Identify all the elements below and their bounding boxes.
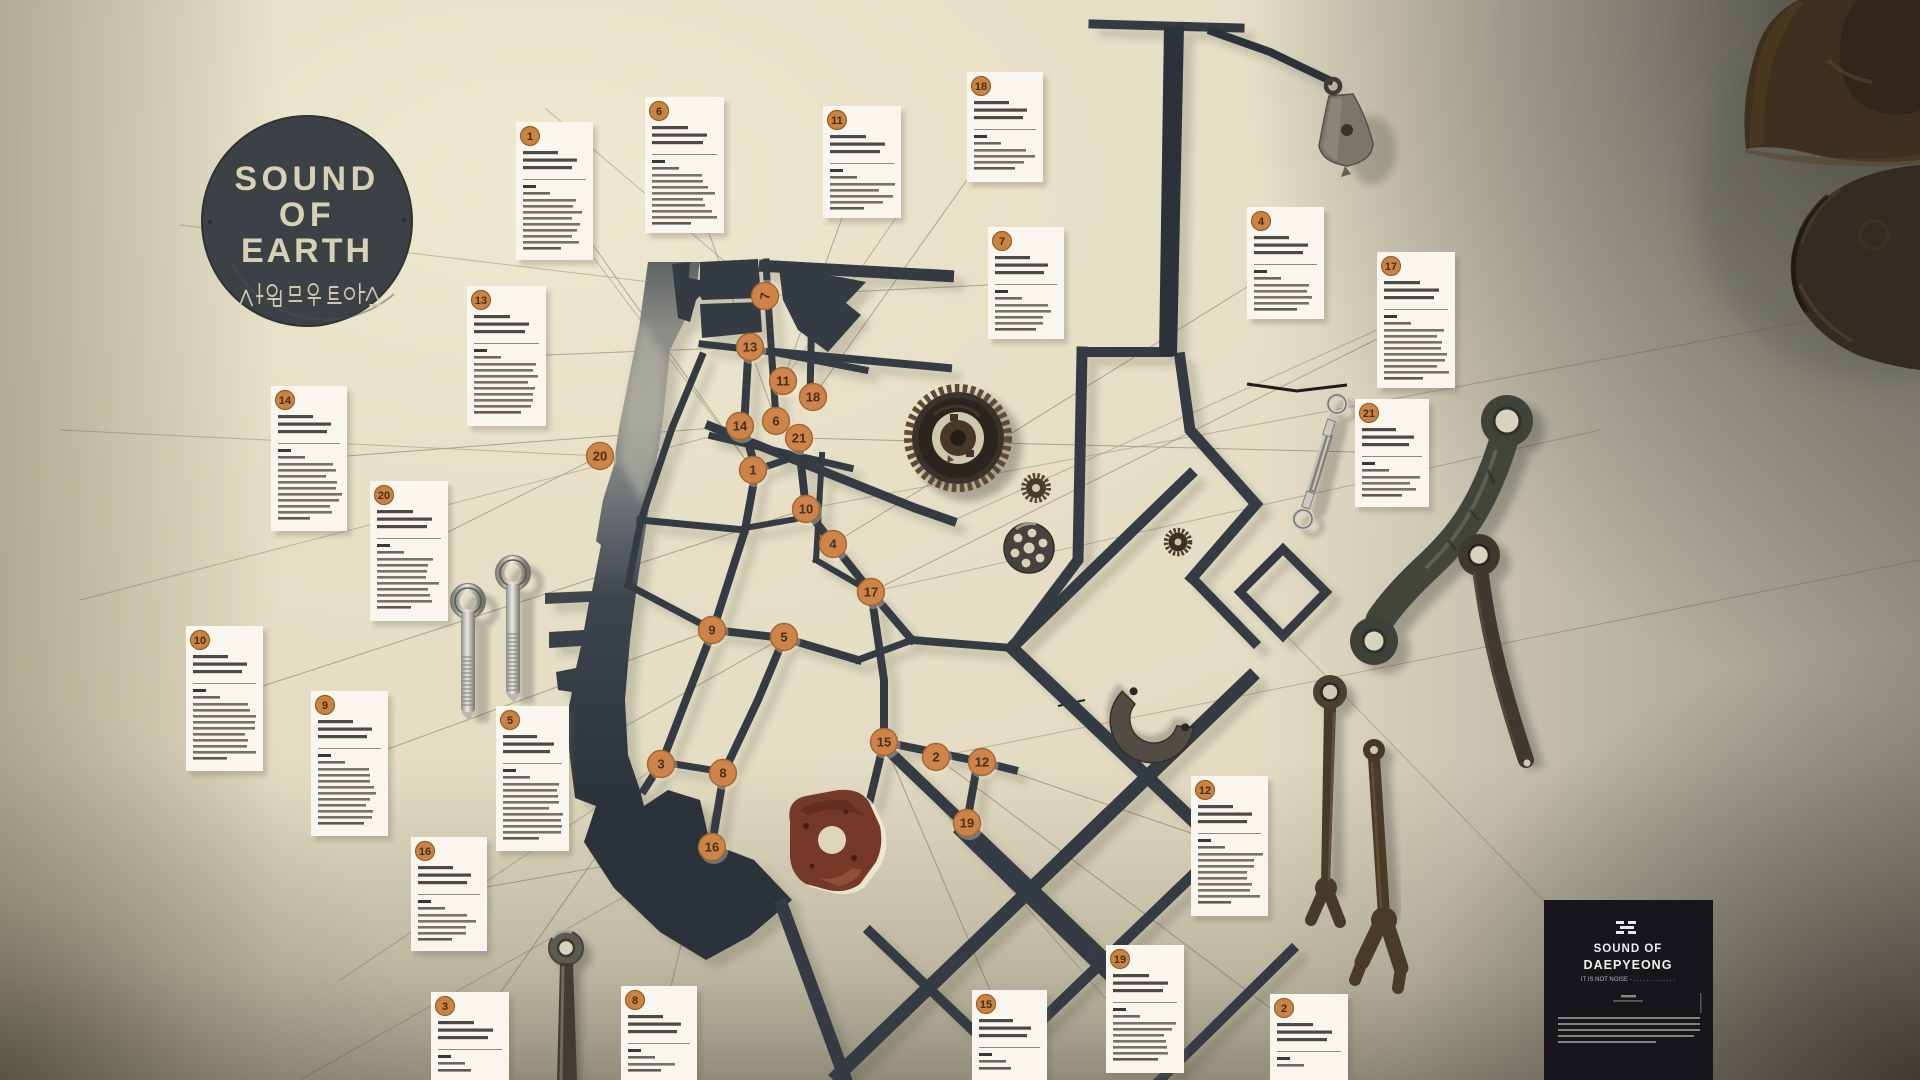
svg-text:5: 5 xyxy=(507,715,513,727)
svg-text:1: 1 xyxy=(749,463,756,478)
svg-text:7: 7 xyxy=(999,236,1005,248)
svg-text:9: 9 xyxy=(322,700,328,712)
svg-text:IT IS NOT NOISE - . . . . .: IT IS NOT NOISE - . . . . . . . . . . . … xyxy=(1581,977,1675,983)
svg-text:15: 15 xyxy=(980,999,992,1011)
svg-text:3: 3 xyxy=(657,757,664,772)
svg-text:14: 14 xyxy=(279,395,292,407)
svg-text:17: 17 xyxy=(1385,261,1397,273)
svg-text:10: 10 xyxy=(194,635,206,647)
svg-text:20: 20 xyxy=(593,449,607,464)
svg-text:6: 6 xyxy=(656,106,662,118)
svg-text:7: 7 xyxy=(757,292,773,301)
svg-text:8: 8 xyxy=(632,995,638,1007)
svg-text:20: 20 xyxy=(378,490,390,502)
svg-text:16: 16 xyxy=(419,846,431,858)
svg-text:6: 6 xyxy=(772,414,779,429)
svg-text:12: 12 xyxy=(975,755,989,770)
svg-text:8: 8 xyxy=(719,766,726,781)
svg-text:4: 4 xyxy=(829,537,837,552)
svg-text:14: 14 xyxy=(733,419,748,434)
svg-text:2: 2 xyxy=(932,750,939,765)
svg-text:21: 21 xyxy=(1363,408,1375,420)
svg-text:5: 5 xyxy=(780,630,787,645)
svg-text:EARTH: EARTH xyxy=(241,232,373,270)
svg-text:12: 12 xyxy=(1199,785,1211,797)
svg-text:OF: OF xyxy=(279,196,335,234)
svg-text:SOUND OF: SOUND OF xyxy=(1594,943,1663,955)
svg-text:16: 16 xyxy=(705,840,719,855)
svg-text:1: 1 xyxy=(527,131,533,143)
svg-text:4: 4 xyxy=(1258,216,1265,228)
svg-text:15: 15 xyxy=(877,735,891,750)
svg-text:11: 11 xyxy=(776,374,790,389)
svg-text:13: 13 xyxy=(743,340,757,355)
svg-text:18: 18 xyxy=(975,81,987,93)
svg-text:SOUND: SOUND xyxy=(234,160,379,198)
svg-text:11: 11 xyxy=(831,115,843,127)
svg-text:21: 21 xyxy=(792,431,806,446)
svg-text:18: 18 xyxy=(806,390,820,405)
svg-text:2: 2 xyxy=(1281,1003,1287,1015)
svg-text:DAEPYEONG: DAEPYEONG xyxy=(1584,958,1673,972)
svg-text:19: 19 xyxy=(1114,954,1126,966)
svg-text:10: 10 xyxy=(799,502,813,517)
svg-text:3: 3 xyxy=(442,1001,448,1013)
svg-text:9: 9 xyxy=(708,623,715,638)
svg-text:13: 13 xyxy=(475,295,487,307)
svg-text:19: 19 xyxy=(960,816,974,831)
svg-text:17: 17 xyxy=(864,585,878,600)
